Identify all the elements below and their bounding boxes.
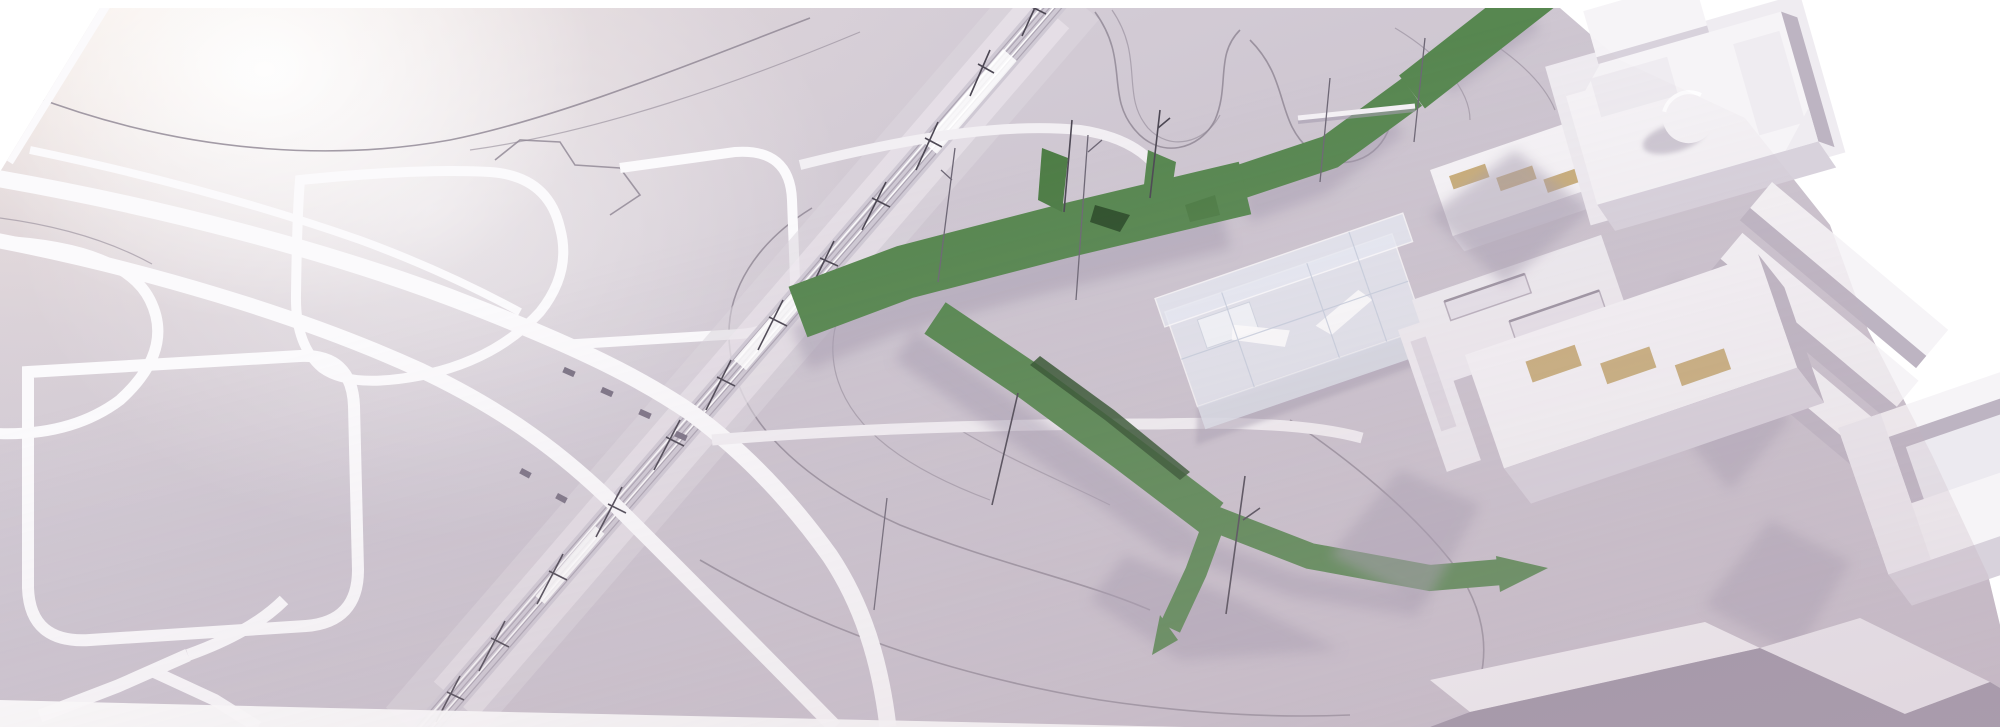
model-photo-svg bbox=[0, 0, 2000, 727]
model-photo bbox=[0, 0, 2000, 727]
vignette-overlay bbox=[0, 0, 2000, 727]
